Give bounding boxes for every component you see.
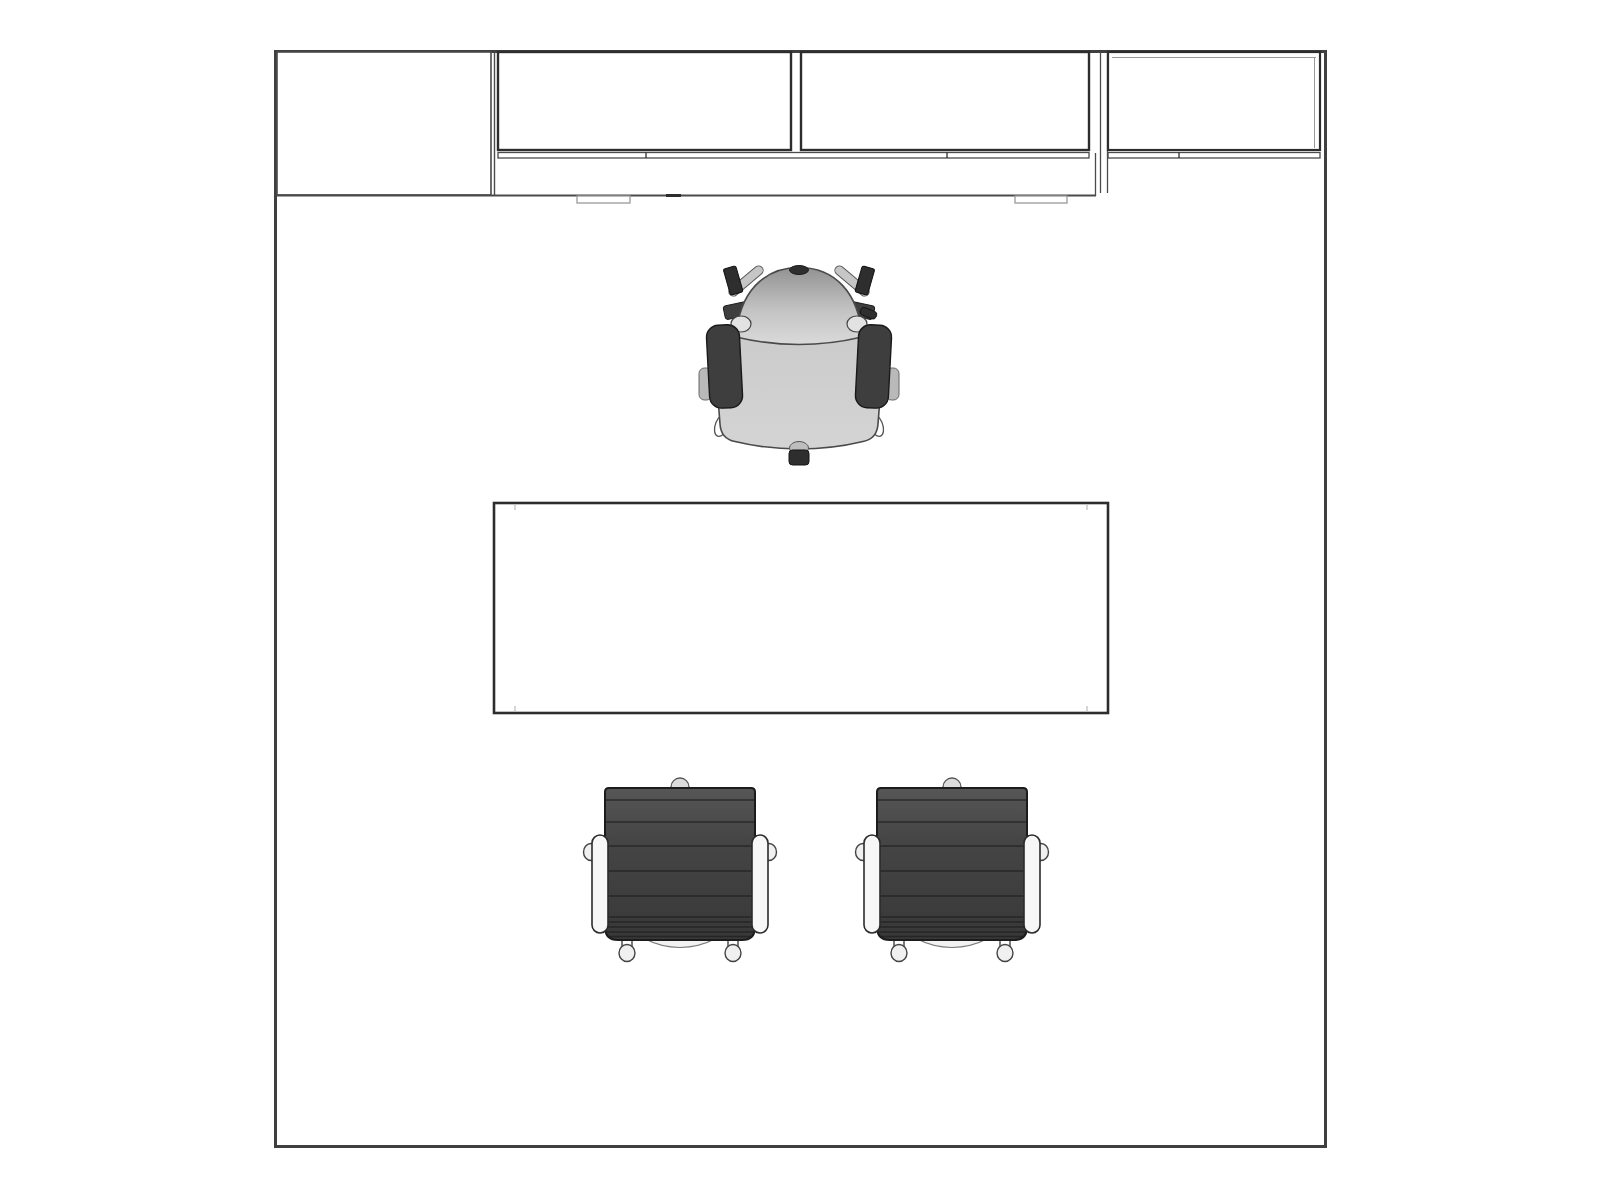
- task-chair-headrest-cap: [790, 266, 809, 275]
- drawer-pull-left: [577, 196, 630, 203]
- task-chair-top-view: [699, 264, 899, 465]
- guest-chair-right: [856, 778, 1049, 962]
- task-chair-armpad-left: [706, 324, 743, 409]
- storage-tower-top-left: [277, 52, 491, 195]
- floor-plan-canvas: [0, 0, 1600, 1200]
- upper-cabinet-center: [801, 52, 1089, 150]
- upper-shelf-right: [1108, 52, 1320, 150]
- end-panel-right: [1101, 52, 1108, 193]
- task-chair-armpad-right: [855, 324, 892, 409]
- drawer-pull-right: [1015, 196, 1067, 203]
- guest-chair-armrest-left: [592, 835, 608, 933]
- guest-chair-left: [584, 778, 777, 962]
- wall-rail: [498, 153, 1320, 159]
- upper-cabinet-left: [498, 52, 791, 150]
- desk-top-view: [494, 503, 1108, 713]
- task-chair-stem: [789, 450, 809, 465]
- guest-chair-armrest-right: [752, 835, 768, 933]
